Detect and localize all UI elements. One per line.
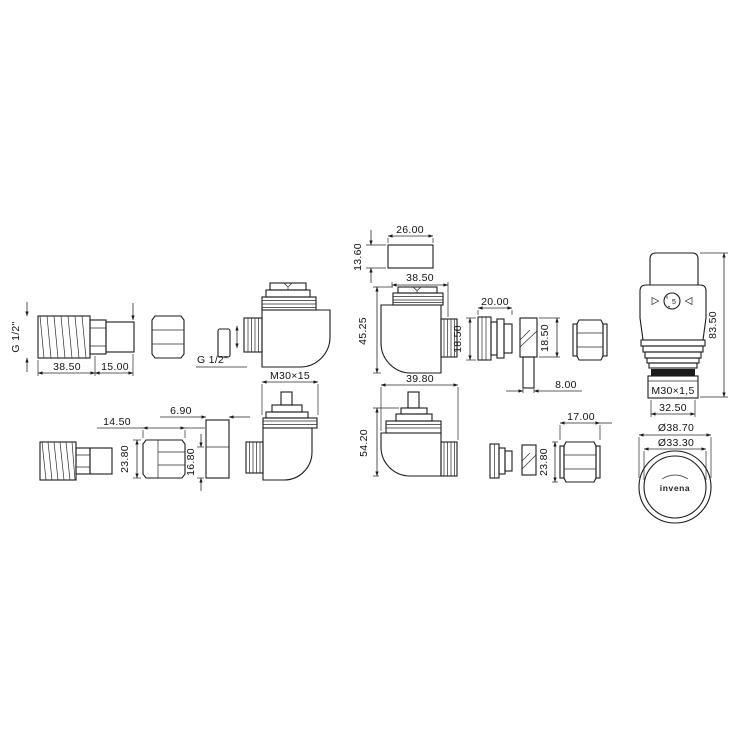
technical-drawing-sheet: G 1/2" 38.50 15.00 G 1/2" M30 [0, 0, 740, 740]
union-nut-front-bottom: 17.00 23.80 [538, 411, 612, 482]
dim-adapter-height: 13.60 [352, 243, 364, 271]
dim-head-height: 83.50 [707, 311, 719, 339]
thermostatic-head-top: Ø38.70 Ø33.30 invena [639, 422, 711, 523]
angle-valve-body-top [244, 283, 330, 367]
dim-tail-thread-length: 38.50 [53, 361, 81, 373]
dim-nut-bot-width: 17.00 [567, 411, 595, 423]
dim-nut-bot-height: 23.80 [538, 448, 550, 476]
dim-nut-bl-width: 14.50 [103, 416, 131, 428]
union-nut-front-top [152, 316, 184, 358]
angle-valve-body-middle: 38.50 45.25 [357, 272, 457, 373]
dial-right-arrow-icon [686, 298, 693, 305]
dim-valve-bot-width: 39.80 [406, 373, 434, 385]
dim-valve-insert-thread: M30×15 [270, 370, 310, 382]
dim-head-outer-dia: Ø38.70 [658, 422, 694, 434]
dim-valve-mid-height: 45.25 [357, 317, 369, 345]
dim-valve-bot-height: 54.20 [358, 429, 370, 457]
brand-logo-text: invena [660, 483, 691, 493]
dial-left-arrow-icon [652, 298, 659, 305]
pipe-insert-small [522, 445, 536, 475]
compression-olive-small [490, 444, 512, 478]
connector-sleeve: G 1/2" [196, 326, 247, 367]
thermostatic-head-side: 5 M30×1,5 32.50 83.50 [640, 253, 728, 417]
dim-tail-plain-length: 15.00 [101, 361, 129, 373]
dim-head-inner-dia: Ø33.30 [658, 437, 694, 449]
angle-valve-with-spindle-left [246, 392, 317, 480]
dim-adapter-width: 26.00 [396, 224, 424, 236]
dim-valve-mid-width: 38.50 [406, 272, 434, 284]
union-nut-front-middle [573, 320, 607, 360]
dim-nut-bl-height: 23.80 [119, 445, 131, 473]
dim-head-thread: M30×1,5 [651, 385, 694, 397]
pipe-insert: 18.50 8.00 [506, 318, 582, 393]
valve-set-drawing: G 1/2" 38.50 15.00 G 1/2" M30 [0, 0, 740, 740]
dim-olive-width: 20.00 [481, 296, 509, 308]
dim-head-width: 32.50 [659, 402, 687, 414]
head-dial-number: 5 [672, 299, 676, 306]
dim-insert-height: 18.50 [539, 324, 551, 352]
dim-spacer-width: 6.90 [170, 405, 192, 417]
logo-arc-icon [662, 475, 688, 479]
angle-valve-with-spindle-bottom: 39.80 54.20 [358, 373, 458, 476]
dim-olive-height: 18.50 [452, 325, 464, 353]
dim-g12-top: G 1/2" [10, 321, 22, 352]
compression-olive: 20.00 18.50 [452, 296, 512, 360]
tailpiece-top: G 1/2" 38.50 15.00 [10, 302, 134, 376]
dim-g12-mid: G 1/2" [197, 354, 228, 366]
dim-spacer-height: 16.80 [185, 448, 197, 476]
tailpiece-bottom [40, 442, 112, 480]
dim-insert-width: 8.00 [555, 379, 577, 391]
